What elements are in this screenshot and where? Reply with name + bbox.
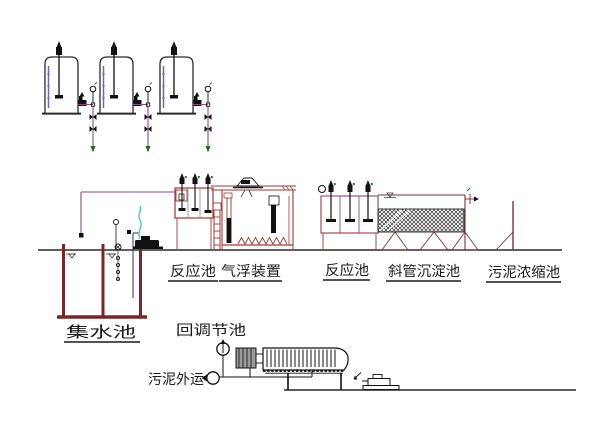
instrument-circle-icon bbox=[319, 186, 326, 193]
inclined-tube-settler-unit bbox=[378, 188, 479, 250]
collection-tank bbox=[57, 233, 147, 317]
mixer-icon bbox=[363, 180, 373, 222]
air-flotation-unit bbox=[211, 178, 296, 250]
aerator-zigzag-icon bbox=[238, 238, 287, 245]
mixer-icon bbox=[326, 180, 336, 222]
label-reaction-tank-2: 反应池 bbox=[325, 262, 369, 279]
label-sludge-haul-away: 污泥外运 bbox=[148, 372, 204, 388]
process-diagram-canvas: 集水池 反应池 气浮装置 反应池 斜管沉淀池 污泥浓缩池 回调节池 污泥外运 bbox=[0, 0, 600, 429]
dosing-tank-2 bbox=[97, 41, 152, 153]
mixer-icon bbox=[205, 173, 213, 213]
label-air-flotation: 气浮装置 bbox=[221, 264, 281, 280]
label-sludge-thickener: 污泥浓缩池 bbox=[488, 265, 560, 281]
screw-pump-icon bbox=[354, 373, 400, 390]
water-level-mark bbox=[66, 254, 116, 258]
dosing-tank-1 bbox=[42, 41, 97, 153]
label-reaction-tank-1: 反应池 bbox=[170, 263, 216, 280]
dosing-tank-3 bbox=[157, 41, 212, 153]
filter-press-motor-icon bbox=[236, 348, 263, 368]
filter-press-legs bbox=[288, 373, 341, 390]
internal-pipe-right bbox=[269, 196, 279, 233]
transfer-pump-icon bbox=[127, 230, 163, 249]
skimmer-icon bbox=[233, 178, 263, 197]
label-inclined-tube-settler: 斜管沉淀池 bbox=[388, 264, 460, 280]
filter-press-feed-pipe bbox=[219, 368, 312, 377]
sludge-out-flow-symbol bbox=[202, 372, 220, 384]
label-collection-tank: 集水池 bbox=[66, 323, 136, 341]
process-diagram: 集水池 反应池 气浮装置 反应池 斜管沉淀池 污泥浓缩池 回调节池 污泥外运 bbox=[0, 0, 600, 429]
access-ladder-icon bbox=[213, 203, 221, 250]
mixer-icon bbox=[192, 173, 200, 211]
regulating-tank-flow-symbol bbox=[217, 339, 229, 377]
reaction-tank-2-unit bbox=[319, 180, 379, 250]
mixer-icon bbox=[179, 173, 187, 211]
internal-pipe-left bbox=[224, 193, 232, 243]
label-back-to-regulating-tank: 回调节池 bbox=[176, 323, 246, 339]
support-trestle-icon bbox=[382, 232, 478, 250]
reaction-tank-1-unit bbox=[175, 173, 213, 250]
hose-to-reaction-tank bbox=[139, 206, 141, 239]
filter-press-unit bbox=[236, 348, 348, 390]
outlet-weir-icon bbox=[465, 188, 479, 204]
labels: 集水池 反应池 气浮装置 反应池 斜管沉淀池 污泥浓缩池 回调节池 污泥外运 bbox=[64, 262, 561, 388]
sludge-thickener-unit bbox=[496, 201, 513, 250]
mixer-icon bbox=[345, 180, 355, 222]
filter-plates bbox=[263, 348, 348, 373]
